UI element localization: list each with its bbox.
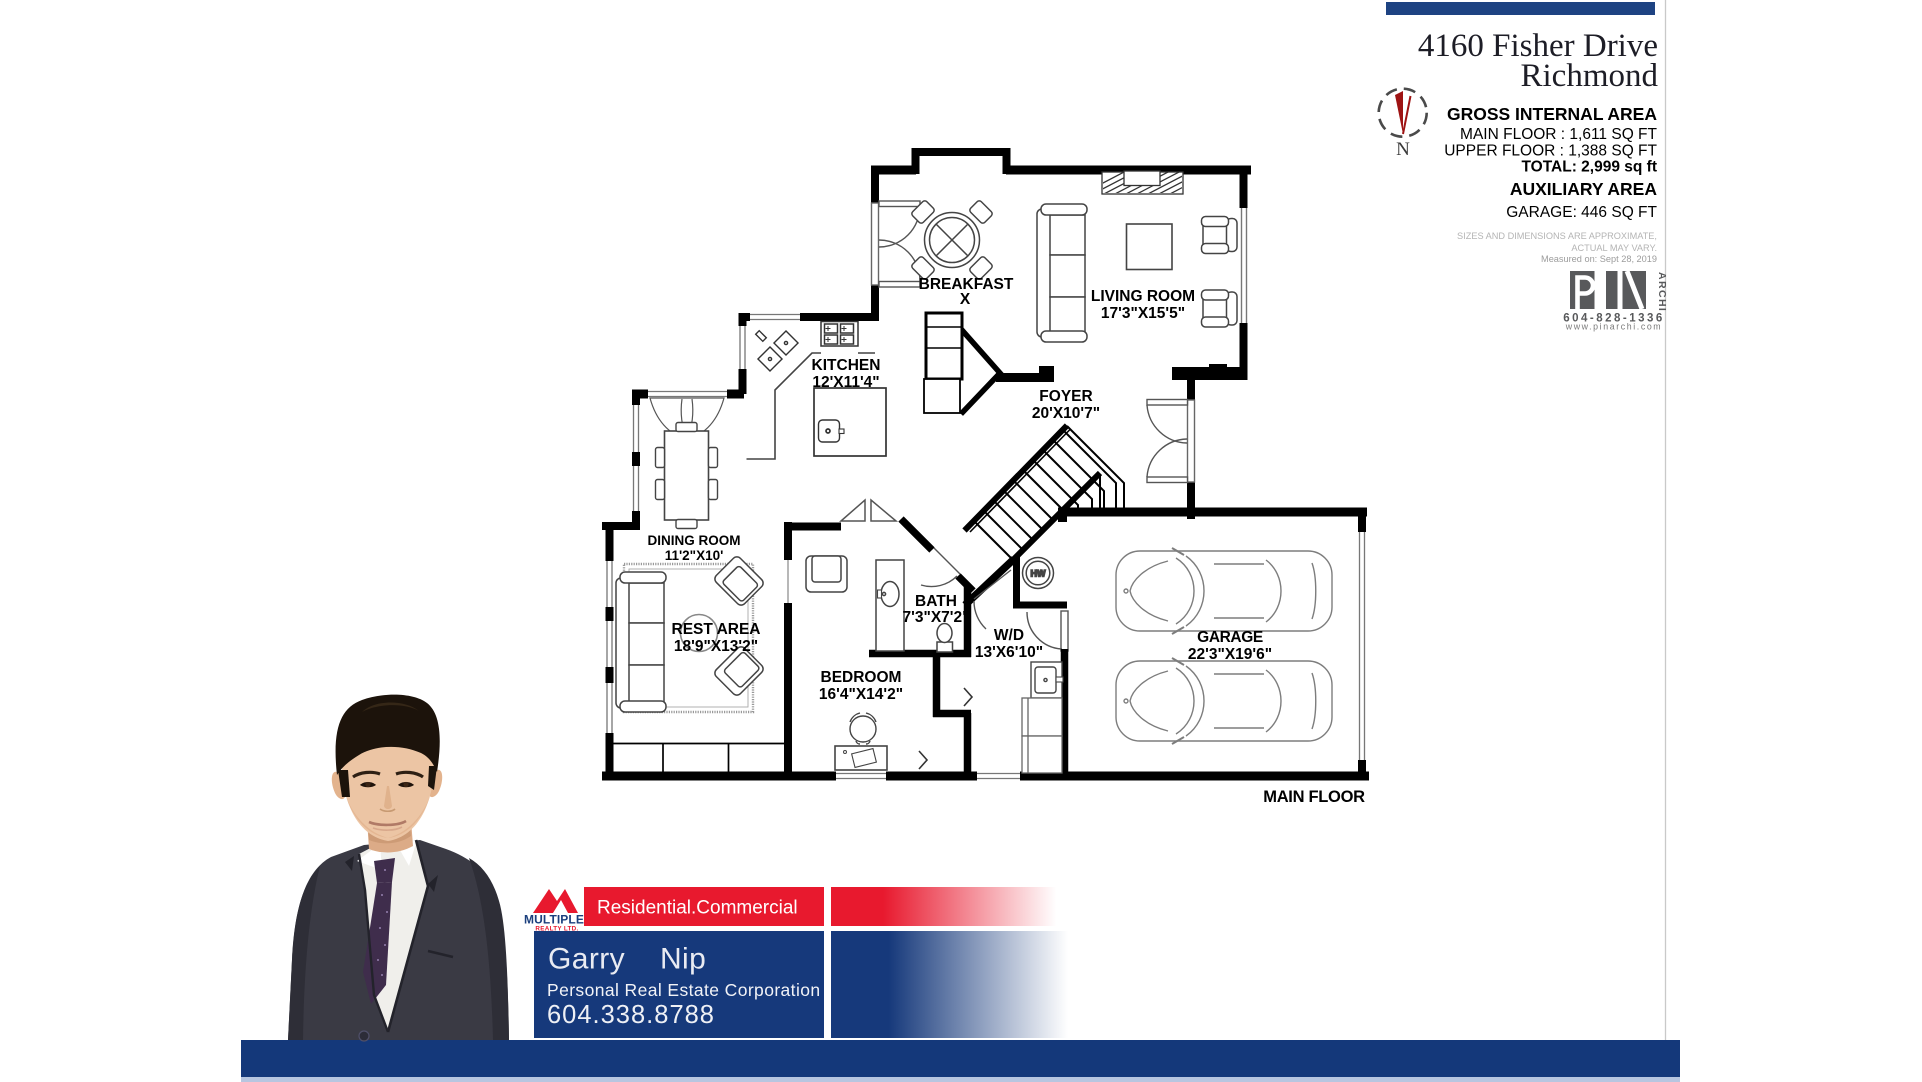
svg-text:Richmond: Richmond: [1521, 58, 1659, 94]
svg-text:Personal Real Estate Corporati: Personal Real Estate Corporation: [547, 980, 821, 1000]
svg-text:17'3"X15'5": 17'3"X15'5": [1101, 305, 1185, 322]
svg-text:GARAGE: 446 SQ FT: GARAGE: 446 SQ FT: [1506, 204, 1657, 221]
svg-text:Garry Nip: Garry Nip: [548, 943, 706, 976]
svg-text:HW: HW: [1031, 569, 1046, 579]
svg-text:FOYER: FOYER: [1039, 388, 1092, 405]
svg-text:Measured on: Sept 28, 2019: Measured on: Sept 28, 2019: [1541, 254, 1657, 264]
svg-text:N: N: [1396, 139, 1410, 160]
svg-text:www.pinarchi.com: www.pinarchi.com: [1565, 322, 1663, 332]
svg-text:UPPER FLOOR : 1,388 SQ FT: UPPER FLOOR : 1,388 SQ FT: [1444, 143, 1657, 160]
svg-text:MAIN FLOOR: MAIN FLOOR: [1263, 788, 1365, 806]
svg-text:ARCHI: ARCHI: [1656, 272, 1668, 312]
svg-text:13'X6'10": 13'X6'10": [975, 644, 1043, 661]
svg-text:AUXILIARY AREA: AUXILIARY AREA: [1510, 179, 1658, 199]
svg-text:LIVING ROOM: LIVING ROOM: [1091, 288, 1195, 305]
svg-text:REST AREA: REST AREA: [672, 621, 761, 638]
svg-text:BEDROOM: BEDROOM: [821, 669, 902, 686]
svg-text:12'X11'4": 12'X11'4": [812, 374, 879, 391]
svg-text:18'9"X13'2": 18'9"X13'2": [674, 638, 758, 655]
svg-text:DINING ROOM: DINING ROOM: [648, 533, 741, 548]
svg-text:GARAGE: GARAGE: [1197, 629, 1263, 646]
svg-text:X: X: [960, 291, 971, 308]
svg-text:11'2"X10': 11'2"X10': [665, 548, 724, 563]
svg-text:W/D: W/D: [994, 627, 1024, 644]
svg-text:7'3"X7'2": 7'3"X7'2": [903, 609, 970, 626]
svg-text:KITCHEN: KITCHEN: [812, 357, 881, 374]
svg-text:SIZES AND DIMENSIONS ARE APPRO: SIZES AND DIMENSIONS ARE APPROXIMATE,: [1457, 231, 1657, 241]
svg-text:22'3"X19'6": 22'3"X19'6": [1188, 646, 1272, 663]
svg-text:16'4"X14'2": 16'4"X14'2": [819, 686, 903, 703]
svg-text:20'X10'7": 20'X10'7": [1032, 405, 1100, 422]
svg-text:604.338.8788: 604.338.8788: [547, 1001, 715, 1029]
svg-text:BATH: BATH: [915, 593, 957, 610]
svg-text:Residential.Commercial: Residential.Commercial: [597, 898, 798, 919]
svg-text:GROSS INTERNAL AREA: GROSS INTERNAL AREA: [1447, 104, 1657, 124]
svg-text:MAIN FLOOR : 1,611 SQ FT: MAIN FLOOR : 1,611 SQ FT: [1460, 126, 1657, 143]
svg-text:MULTIPLE: MULTIPLE: [524, 913, 584, 927]
svg-text:ACTUAL MAY VARY.: ACTUAL MAY VARY.: [1571, 243, 1657, 253]
svg-text:TOTAL: 2,999 sq ft: TOTAL: 2,999 sq ft: [1521, 159, 1657, 176]
